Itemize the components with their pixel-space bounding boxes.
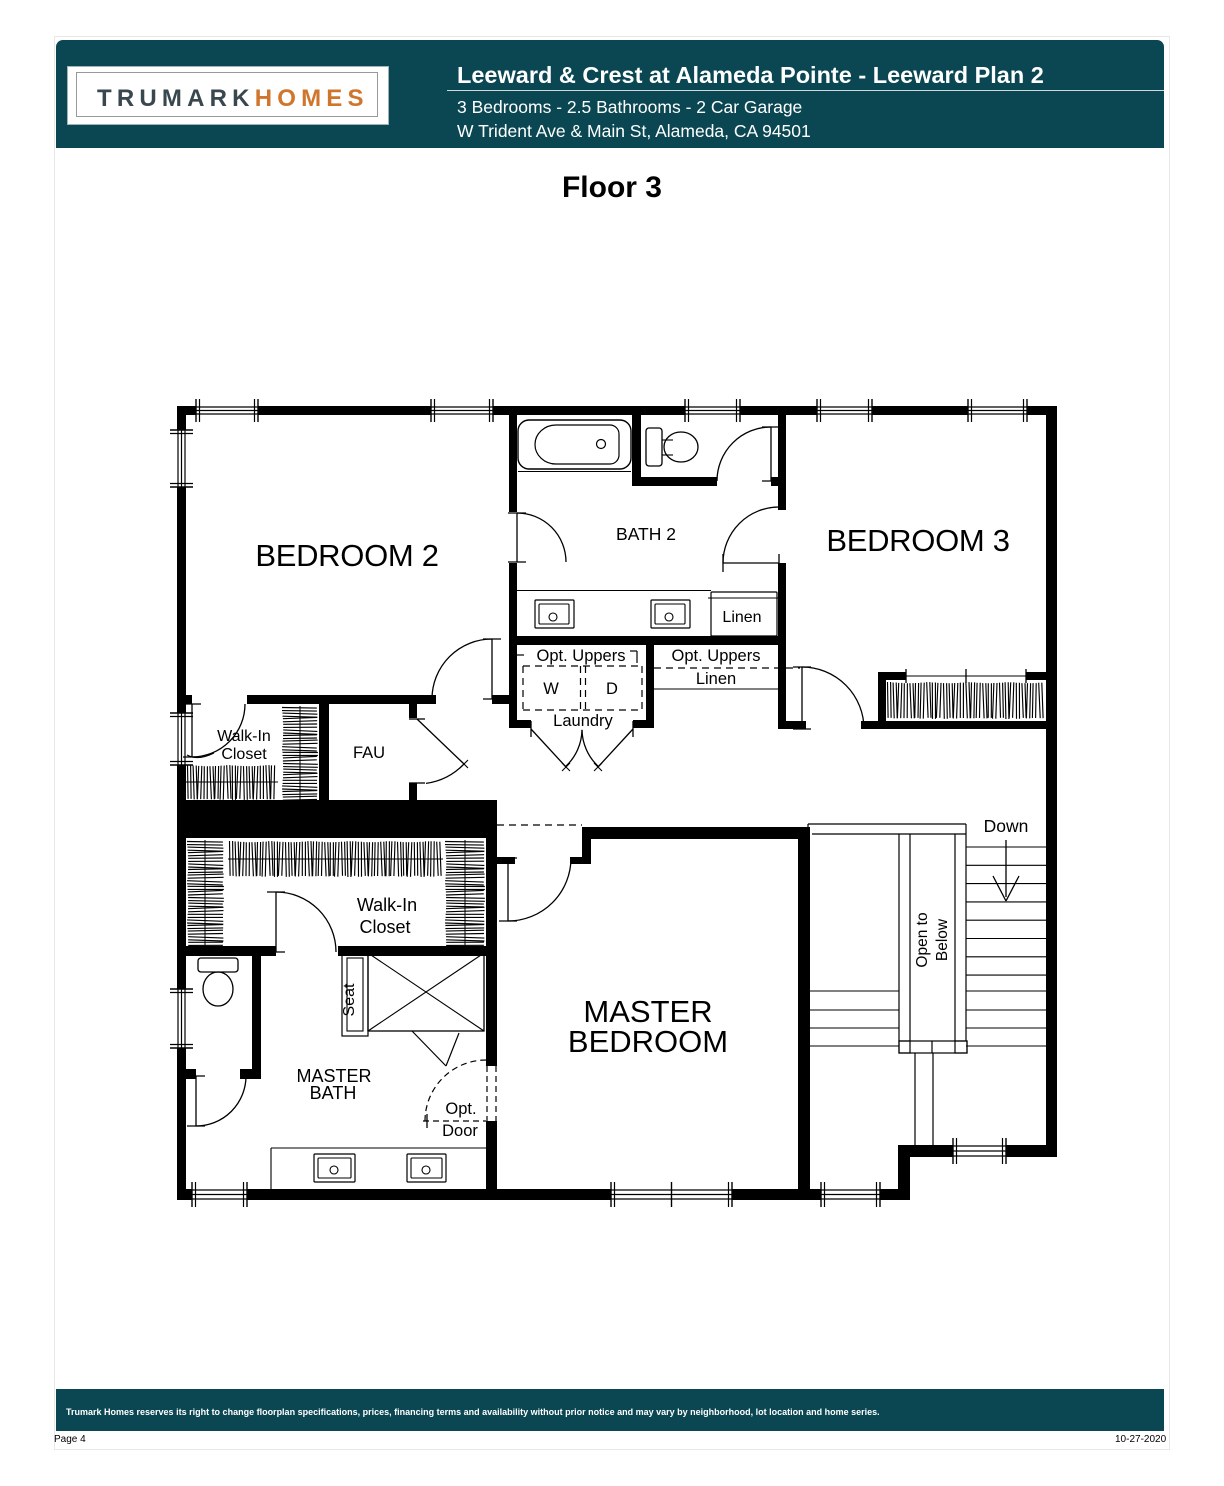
svg-text:Seat: Seat: [341, 983, 358, 1016]
svg-text:Walk-In: Walk-In: [357, 895, 417, 915]
svg-text:Linen: Linen: [722, 609, 761, 626]
svg-text:FAU: FAU: [353, 744, 385, 762]
svg-text:Down: Down: [984, 816, 1029, 836]
svg-text:Closet: Closet: [359, 917, 410, 937]
svg-text:Below: Below: [934, 918, 951, 961]
svg-text:Walk-In: Walk-In: [217, 728, 271, 745]
svg-text:BEDROOM 2: BEDROOM 2: [255, 538, 438, 573]
svg-text:Opt. Uppers: Opt. Uppers: [537, 647, 626, 665]
svg-text:Laundry: Laundry: [553, 712, 613, 730]
svg-text:W: W: [543, 680, 559, 698]
svg-text:D: D: [606, 680, 618, 698]
svg-text:Open to: Open to: [914, 912, 931, 967]
svg-text:Linen: Linen: [696, 670, 736, 688]
svg-text:Opt. Uppers: Opt. Uppers: [672, 647, 761, 665]
svg-text:BATH 2: BATH 2: [616, 524, 676, 544]
svg-text:BEDROOM: BEDROOM: [568, 1024, 728, 1059]
svg-text:BEDROOM 3: BEDROOM 3: [826, 523, 1009, 558]
svg-text:Opt.: Opt.: [445, 1100, 476, 1118]
svg-text:Closet: Closet: [221, 746, 267, 763]
svg-text:BATH: BATH: [310, 1083, 357, 1103]
svg-text:Door: Door: [442, 1122, 478, 1140]
